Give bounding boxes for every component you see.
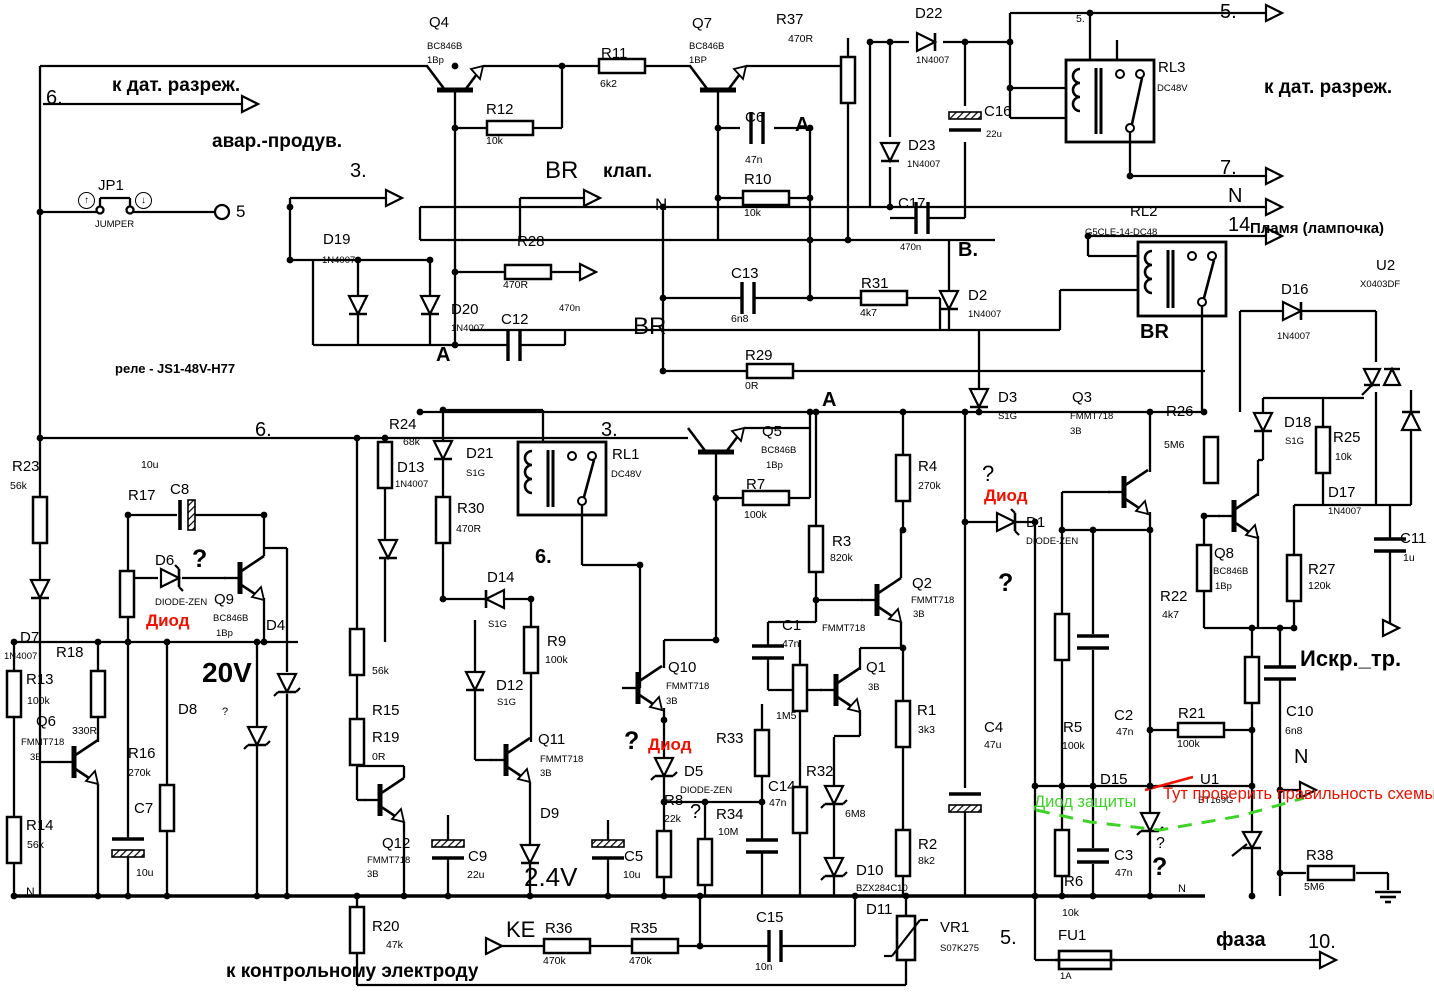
label-R18: R18 (56, 645, 84, 661)
label-470n: 470n (559, 304, 580, 314)
label-10M: 10M (718, 827, 738, 838)
label-R14: R14 (26, 818, 54, 834)
label-D2: D2 (968, 288, 987, 304)
label-Q8: Q8 (1214, 546, 1234, 562)
label-к-дат.-разреж.: к дат. разреж. (112, 76, 240, 96)
label-5M6: 5M6 (1304, 882, 1324, 893)
label-BC846B: BC846B (427, 42, 462, 52)
label-Q3: Q3 (1072, 390, 1092, 406)
label-D22: D22 (915, 6, 943, 22)
label-1N4007: 1N4007 (4, 652, 37, 662)
label-56k: 56k (372, 666, 389, 677)
label-Диод-защиты: Диод защиты (1034, 794, 1136, 811)
label-47u: 47u (984, 740, 1002, 751)
label-FMMT718: FMMT718 (1070, 412, 1113, 422)
label-470k: 470k (629, 956, 652, 967)
label-1N4007: 1N4007 (451, 324, 484, 334)
label-D1: D1 (1026, 515, 1045, 531)
label-Диод: Диод (984, 487, 1028, 505)
label--: ? (998, 570, 1013, 596)
label-C14: C14 (768, 779, 796, 795)
label-6M8: 6M8 (845, 809, 865, 820)
label-C8: C8 (170, 482, 189, 498)
label-R37: R37 (776, 12, 804, 28)
label-VR1: VR1 (940, 920, 969, 936)
label-C12: C12 (501, 312, 529, 328)
label-10.: 10. (1308, 932, 1336, 953)
schematic-labels-layer: к дат. разреж.6.авар.-продув.3.JP1JUMPER… (0, 0, 1434, 1001)
label-470k: 470k (543, 956, 566, 967)
label-1N4007: 1N4007 (907, 160, 940, 170)
label-1N4007: 1N4007 (1328, 507, 1361, 517)
label-S1G: S1G (466, 469, 485, 479)
label-C13: C13 (731, 266, 759, 282)
label-Диод: Диод (648, 736, 692, 754)
label-D4: D4 (266, 618, 285, 634)
label-4k7: 4k7 (1162, 610, 1179, 621)
label-D16: D16 (1281, 282, 1309, 298)
label-R15: R15 (372, 703, 400, 719)
label-N: N (26, 886, 35, 899)
label-820k: 820k (830, 553, 853, 564)
label-RL2: RL2 (1130, 204, 1158, 220)
label-R25: R25 (1333, 430, 1361, 446)
label-R27: R27 (1308, 562, 1336, 578)
label-Q1: Q1 (866, 660, 886, 676)
label-R23: R23 (12, 459, 40, 475)
label-2.4V: 2.4V (524, 864, 578, 891)
label-3B: 3B (367, 870, 379, 880)
label-R19: R19 (372, 730, 400, 746)
label-R33: R33 (716, 731, 744, 747)
label-DIODE-ZEN: DIODE-ZEN (155, 598, 207, 608)
label-клап.: клап. (603, 162, 652, 182)
label-реле-JS1-48V-H77: реле - JS1-48V-H77 (115, 362, 235, 376)
label-FMMT718: FMMT718 (822, 624, 865, 634)
label-1N4007: 1N4007 (395, 480, 428, 490)
label-6.: 6. (46, 88, 63, 109)
label-FMMT718: FMMT718 (540, 755, 583, 765)
label-BC846B: BC846B (761, 446, 796, 456)
label-D10: D10 (856, 863, 884, 879)
label-C2: C2 (1114, 708, 1133, 724)
label-R1: R1 (917, 703, 936, 719)
label-Искр._тр.: Искр._тр. (1300, 647, 1401, 670)
label-FMMT718: FMMT718 (666, 682, 709, 692)
label-4k7: 4k7 (860, 308, 877, 319)
label-C11: C11 (1400, 531, 1426, 547)
label-FMMT718: FMMT718 (367, 856, 410, 866)
label-1N4007: 1N4007 (916, 56, 949, 66)
label--: ? (222, 707, 228, 719)
label-120k: 120k (1308, 581, 1331, 592)
label-10u: 10u (623, 870, 641, 881)
label-C1: C1 (782, 618, 801, 634)
label-D14: D14 (487, 570, 515, 586)
label-R32: R32 (806, 764, 834, 780)
label-D15: D15 (1100, 772, 1128, 788)
label-R13: R13 (26, 672, 54, 688)
label-DIODE-ZEN: DIODE-ZEN (1026, 537, 1078, 547)
label-5.: 5. (1220, 2, 1237, 23)
label-R10: R10 (744, 172, 772, 188)
label-RL1: RL1 (612, 447, 640, 463)
label-S07K275: S07K275 (940, 944, 979, 954)
label-3.: 3. (350, 161, 367, 182)
label-BR: BR (1140, 322, 1169, 343)
label-DC48V: DC48V (1157, 84, 1188, 94)
label-KE: KE (506, 918, 535, 941)
label-100k: 100k (744, 510, 767, 521)
label-D7: D7 (20, 630, 39, 646)
label-1N4007: 1N4007 (968, 310, 1001, 320)
label-D20: D20 (451, 302, 479, 318)
label-22u: 22u (467, 870, 485, 881)
label-270k: 270k (128, 768, 151, 779)
label-Q2: Q2 (912, 576, 932, 592)
label-D3: D3 (998, 390, 1017, 406)
label-100k: 100k (1062, 741, 1085, 752)
label-7.: 7. (1220, 158, 1237, 179)
label-100k: 100k (1177, 739, 1200, 750)
label-R28: R28 (517, 234, 545, 250)
label-FMMT718: FMMT718 (21, 738, 64, 748)
label-BC846B: BC846B (213, 614, 248, 624)
label-R36: R36 (545, 921, 573, 937)
label-Q12: Q12 (382, 836, 410, 852)
label--: ? (982, 462, 994, 485)
label-D8: D8 (178, 702, 197, 718)
label-5.: 5. (1000, 928, 1017, 949)
label-C7: C7 (134, 801, 153, 817)
label-10u: 10u (136, 868, 154, 879)
label-3B: 3B (868, 683, 880, 693)
label-C4: C4 (984, 720, 1003, 736)
label-S1G: S1G (1285, 437, 1304, 447)
label-47n: 47n (769, 798, 787, 809)
label-JUMPER: JUMPER (95, 220, 134, 230)
label-R2: R2 (918, 837, 937, 853)
label-R38: R38 (1306, 848, 1334, 864)
label-D11: D11 (866, 902, 892, 918)
label-C3: C3 (1114, 848, 1133, 864)
label-0R: 0R (372, 752, 385, 763)
label-D6: D6 (155, 553, 174, 569)
label-D17: D17 (1328, 485, 1356, 501)
label-G5CLE-14-DC48: G5CLE-14-DC48 (1085, 228, 1157, 238)
label-JP1: JP1 (98, 178, 124, 194)
label-D13: D13 (397, 460, 425, 476)
label-D9: D9 (540, 806, 559, 822)
label-3B: 3B (666, 697, 678, 707)
label-R20: R20 (372, 919, 400, 935)
jumper-direction-icon: ↓ (135, 192, 152, 209)
label--: ? (624, 728, 639, 754)
label-R5: R5 (1063, 720, 1082, 736)
label-0R: 0R (745, 381, 758, 392)
label-56k: 56k (27, 840, 44, 851)
label-D12: D12 (496, 678, 524, 694)
label-1Bp: 1Bp (1215, 582, 1232, 592)
label-фаза: фаза (1216, 930, 1266, 951)
label-6n8: 6n8 (731, 314, 749, 325)
label-6.: 6. (255, 420, 272, 441)
label-1A: 1A (1060, 972, 1072, 982)
label-DIODE-ZEN: DIODE-ZEN (680, 786, 732, 796)
label-Тут-проверить-правильность-схе: Тут проверить правильность схемы (1163, 786, 1434, 803)
label-A: A (822, 390, 836, 411)
label-R22: R22 (1160, 589, 1188, 605)
label-N: N (655, 196, 667, 214)
label-5.: 5. (1076, 14, 1085, 25)
label-Пламя-лампочка-: Пламя (лампочка) (1250, 221, 1384, 237)
label-авар.-продув.: авар.-продув. (212, 132, 342, 152)
label-14: 14 (1228, 215, 1250, 236)
label-3B: 3B (1070, 427, 1082, 437)
label-R4: R4 (918, 459, 937, 475)
label-100k: 100k (27, 696, 50, 707)
label-6.: 6. (535, 547, 552, 568)
label-1u: 1u (1403, 553, 1415, 564)
label--: ? (1152, 854, 1167, 880)
label-68k: 68k (403, 437, 420, 448)
label-5: 5 (236, 203, 245, 221)
label-1BP: 1BP (689, 56, 707, 66)
label-BR: BR (545, 158, 578, 183)
label-R3: R3 (832, 534, 851, 550)
label-3B: 3B (913, 610, 925, 620)
label-N: N (1294, 747, 1308, 768)
label-U2: U2 (1376, 258, 1395, 274)
label-C10: C10 (1286, 704, 1314, 720)
label-R6: R6 (1064, 874, 1083, 890)
label-10n: 10n (755, 962, 773, 973)
label-Q6: Q6 (36, 714, 56, 730)
label-Диод: Диод (146, 612, 190, 630)
label-D18: D18 (1284, 415, 1312, 431)
label-22u: 22u (986, 130, 1002, 140)
jumper-direction-icon: ↑ (78, 192, 95, 209)
label-Q11: Q11 (538, 732, 565, 748)
label-1Bp: 1Bp (766, 461, 783, 471)
label-47n: 47n (782, 639, 800, 650)
label-10u: 10u (141, 460, 159, 471)
label-10k: 10k (744, 208, 761, 219)
label-R9: R9 (547, 634, 566, 650)
label-Q10: Q10 (668, 660, 696, 676)
label-BC846B: BC846B (1213, 567, 1248, 577)
label-47n: 47n (1116, 727, 1134, 738)
label-1Bp: 1Bp (427, 56, 444, 66)
label-470n: 470n (900, 243, 921, 253)
label-N: N (1178, 884, 1186, 896)
label-R21: R21 (1178, 706, 1206, 722)
label-к-дат.-разреж.: к дат. разреж. (1264, 78, 1392, 98)
label-R12: R12 (486, 102, 514, 118)
label-270k: 270k (918, 481, 941, 492)
label-R26: R26 (1166, 404, 1194, 420)
label-C16: C16 (984, 104, 1012, 120)
label-R30: R30 (457, 501, 485, 517)
label-Q9: Q9 (214, 592, 234, 608)
label-R34: R34 (716, 807, 744, 823)
label-S1G: S1G (998, 412, 1017, 422)
label-1Bp: 1Bp (216, 629, 233, 639)
label-D19: D19 (323, 232, 351, 248)
label-3.: 3. (601, 420, 618, 441)
label-10k: 10k (1335, 452, 1352, 463)
label-470R: 470R (503, 280, 528, 291)
label--: ? (690, 802, 701, 823)
label-6n8: 6n8 (1285, 726, 1303, 737)
label-D23: D23 (908, 138, 936, 154)
label-X0403DF: X0403DF (1360, 280, 1400, 290)
label-1N4007: 1N4007 (322, 256, 355, 266)
label-C6: C6 (745, 110, 764, 126)
label-C15: C15 (756, 910, 784, 926)
label-R24: R24 (389, 417, 417, 433)
label-R11: R11 (601, 46, 627, 62)
label-RL3: RL3 (1158, 60, 1186, 76)
label-N: N (1228, 186, 1242, 207)
label-56k: 56k (10, 481, 27, 492)
label-R31: R31 (861, 276, 889, 292)
label-А: А (795, 115, 809, 136)
label-8k2: 8k2 (918, 856, 935, 867)
label-3k3: 3k3 (918, 725, 935, 736)
label-FMMT718: FMMT718 (911, 596, 954, 606)
label-А: А (436, 345, 450, 366)
label-5M6: 5M6 (1164, 440, 1184, 451)
label-D5: D5 (684, 764, 703, 780)
label-10k: 10k (1062, 908, 1079, 919)
label-S1G: S1G (488, 620, 507, 630)
label-6k2: 6k2 (600, 79, 617, 90)
label-100k: 100k (545, 655, 568, 666)
label-47n: 47n (1115, 868, 1133, 879)
label-DC48V: DC48V (611, 470, 642, 480)
label-Q4: Q4 (429, 15, 449, 31)
label-C9: C9 (468, 849, 487, 865)
label-FU1: FU1 (1058, 928, 1086, 944)
label-47k: 47k (386, 940, 403, 951)
label-3B: 3B (540, 769, 552, 779)
label-R29: R29 (745, 348, 773, 364)
circuit-schematic: к дат. разреж.6.авар.-продув.3.JP1JUMPER… (0, 0, 1434, 1001)
label-3B: 3B (30, 753, 42, 763)
label-1M5: 1M5 (776, 711, 796, 722)
label-1N4007: 1N4007 (1277, 332, 1310, 342)
label-R7: R7 (746, 477, 765, 493)
label-330R: 330R (72, 726, 97, 737)
label-C5: C5 (624, 849, 643, 865)
label-Q5: Q5 (762, 424, 782, 440)
label-к-контрольному-электроду: к контрольному электроду (226, 962, 478, 982)
label-47n: 47n (745, 155, 763, 166)
label-C17: C17 (898, 196, 926, 212)
label-D21: D21 (466, 446, 494, 462)
label--: ? (192, 546, 207, 572)
label-20V: 20V (202, 658, 252, 687)
label-R17: R17 (128, 488, 156, 504)
label-22k: 22k (664, 814, 681, 825)
label-R16: R16 (128, 746, 156, 762)
label-10k: 10k (486, 136, 503, 147)
label-470R: 470R (456, 524, 481, 535)
label-R8: R8 (664, 793, 683, 809)
label-470R: 470R (788, 34, 813, 45)
label-Q7: Q7 (692, 16, 712, 32)
label-BR: BR (633, 314, 666, 339)
label-R35: R35 (630, 921, 658, 937)
label-S1G: S1G (497, 698, 516, 708)
label-BC846B: BC846B (689, 42, 724, 52)
label-В.: В. (958, 240, 978, 261)
label--: ? (1156, 836, 1165, 853)
label-BZX284C10: BZX284C10 (856, 884, 908, 894)
